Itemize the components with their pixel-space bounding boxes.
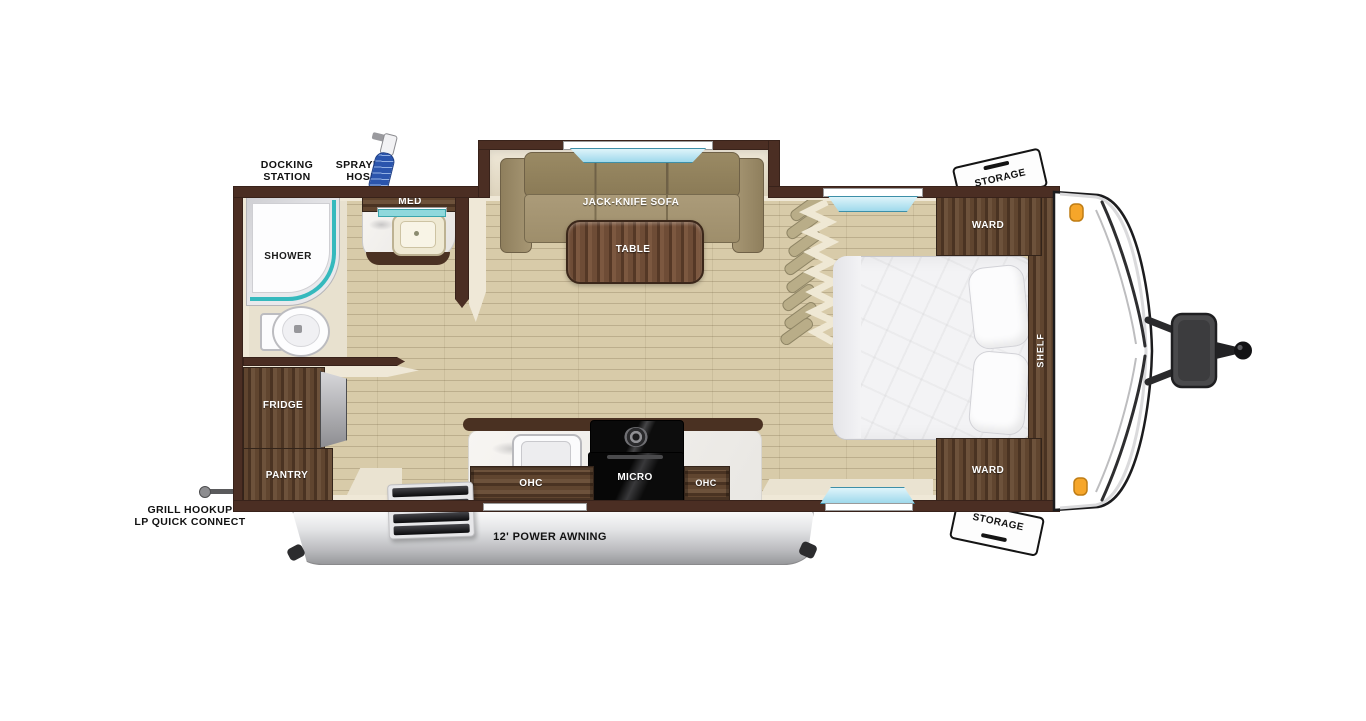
bed-pillow-bottom xyxy=(968,350,1031,437)
front-cap-body xyxy=(1054,192,1152,510)
bed-pillow-top xyxy=(967,263,1031,350)
ohc-left-label: OHC xyxy=(470,478,592,490)
table-label: TABLE xyxy=(566,244,700,256)
pantry-label: PANTRY xyxy=(243,470,331,482)
microwave-vent xyxy=(607,455,663,459)
micro-label: MICRO xyxy=(588,472,682,484)
docking-station-label-2: STATION xyxy=(245,171,329,183)
toilet-flush-icon xyxy=(294,325,302,333)
bedroom-window-top-sill xyxy=(823,188,923,197)
hitch-coupler xyxy=(1216,342,1237,359)
front-cap xyxy=(1040,180,1266,542)
faucet-icon xyxy=(414,231,419,236)
wall-left xyxy=(233,186,243,512)
grill-hookup-knob-icon xyxy=(199,486,211,498)
bedroom-window-top xyxy=(826,196,920,212)
hitch-ball-icon xyxy=(1234,342,1252,360)
marker-light-bottom-icon xyxy=(1074,478,1087,495)
storage-handle-icon xyxy=(981,533,1007,542)
ward-bottom-label: WARD xyxy=(936,465,1040,477)
wall-top-left xyxy=(233,186,480,198)
bath-wall-horizontal xyxy=(243,357,405,366)
slideout-window xyxy=(567,148,709,163)
entry-door xyxy=(483,503,587,511)
rv-floorplan: 12' POWER AWNING STORAGE STORAGE GRILL H… xyxy=(0,0,1366,721)
med-mirror xyxy=(378,209,446,217)
fridge-label: FRIDGE xyxy=(243,400,323,412)
bedroom-window-bottom-sill xyxy=(825,503,913,511)
marker-light-top-icon xyxy=(1070,204,1083,221)
wall-bottom xyxy=(233,500,1060,512)
docking-station-label-1: DOCKING xyxy=(245,159,329,171)
burner-icon xyxy=(624,427,648,447)
bedroom-window-bottom xyxy=(818,487,917,504)
fridge-side-panel xyxy=(320,371,347,448)
storage-bottom-label: STORAGE xyxy=(955,508,1042,537)
ward-top-label: WARD xyxy=(936,220,1040,232)
shower-label: SHOWER xyxy=(250,251,326,263)
sofa-label: JACK-KNIFE SOFA xyxy=(540,197,722,209)
bath-wall-vertical xyxy=(455,196,469,308)
ohc-right-label: OHC xyxy=(684,478,728,489)
grill-hookup-label-2: LP QUICK CONNECT xyxy=(108,516,272,528)
bed-foot-fold xyxy=(833,256,861,438)
storage-handle-icon xyxy=(983,161,1009,171)
